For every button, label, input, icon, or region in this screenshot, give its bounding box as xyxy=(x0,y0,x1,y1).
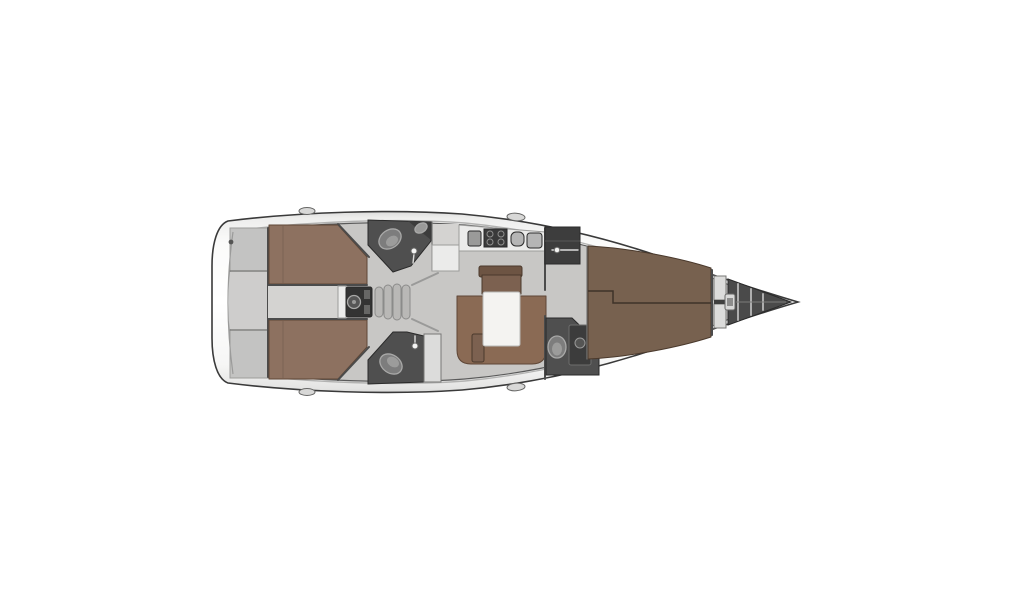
mooring-cleat-icon xyxy=(299,389,315,396)
bow-shelf-top xyxy=(714,276,726,300)
stern-lazarette xyxy=(228,228,268,378)
forward-wardrobe xyxy=(545,227,580,264)
yacht-floor-plan xyxy=(0,0,1024,600)
aft-corridor-floor xyxy=(268,286,345,318)
windlass-detail xyxy=(727,298,733,306)
engine-fan-hub xyxy=(352,300,356,304)
galley-sink-round xyxy=(511,232,524,246)
rail-hook xyxy=(554,247,560,253)
bow-shelf-gap xyxy=(714,300,726,304)
galley-appliance xyxy=(468,231,481,246)
door-knob xyxy=(411,248,417,254)
toilet-seat xyxy=(552,343,562,356)
engine-front-panel xyxy=(338,286,346,318)
companionway-step xyxy=(402,285,410,319)
galley-counter-wing xyxy=(432,245,459,271)
table-folded-leaf xyxy=(482,275,521,294)
companionway-step xyxy=(375,287,383,317)
head-locker xyxy=(424,334,441,382)
shower-dial xyxy=(575,338,585,348)
engine-detail xyxy=(364,290,370,299)
floor-plan-canvas xyxy=(0,0,1024,600)
engine-detail xyxy=(364,305,370,314)
saloon-table xyxy=(483,292,520,346)
galley-sink-square xyxy=(527,233,542,248)
wardrobe-cabinet xyxy=(545,227,580,264)
bow xyxy=(714,276,791,328)
forward-cabin xyxy=(587,246,712,359)
door-knob xyxy=(412,343,418,349)
companionway-step xyxy=(393,284,401,320)
companionway-step xyxy=(384,285,392,319)
stern-fitting xyxy=(229,240,234,245)
settee-stool xyxy=(472,334,484,362)
door-stem xyxy=(413,254,414,263)
stern-locker-recess xyxy=(230,272,268,329)
bow-shelf-bottom xyxy=(714,304,726,328)
mooring-cleat-icon xyxy=(299,208,315,215)
